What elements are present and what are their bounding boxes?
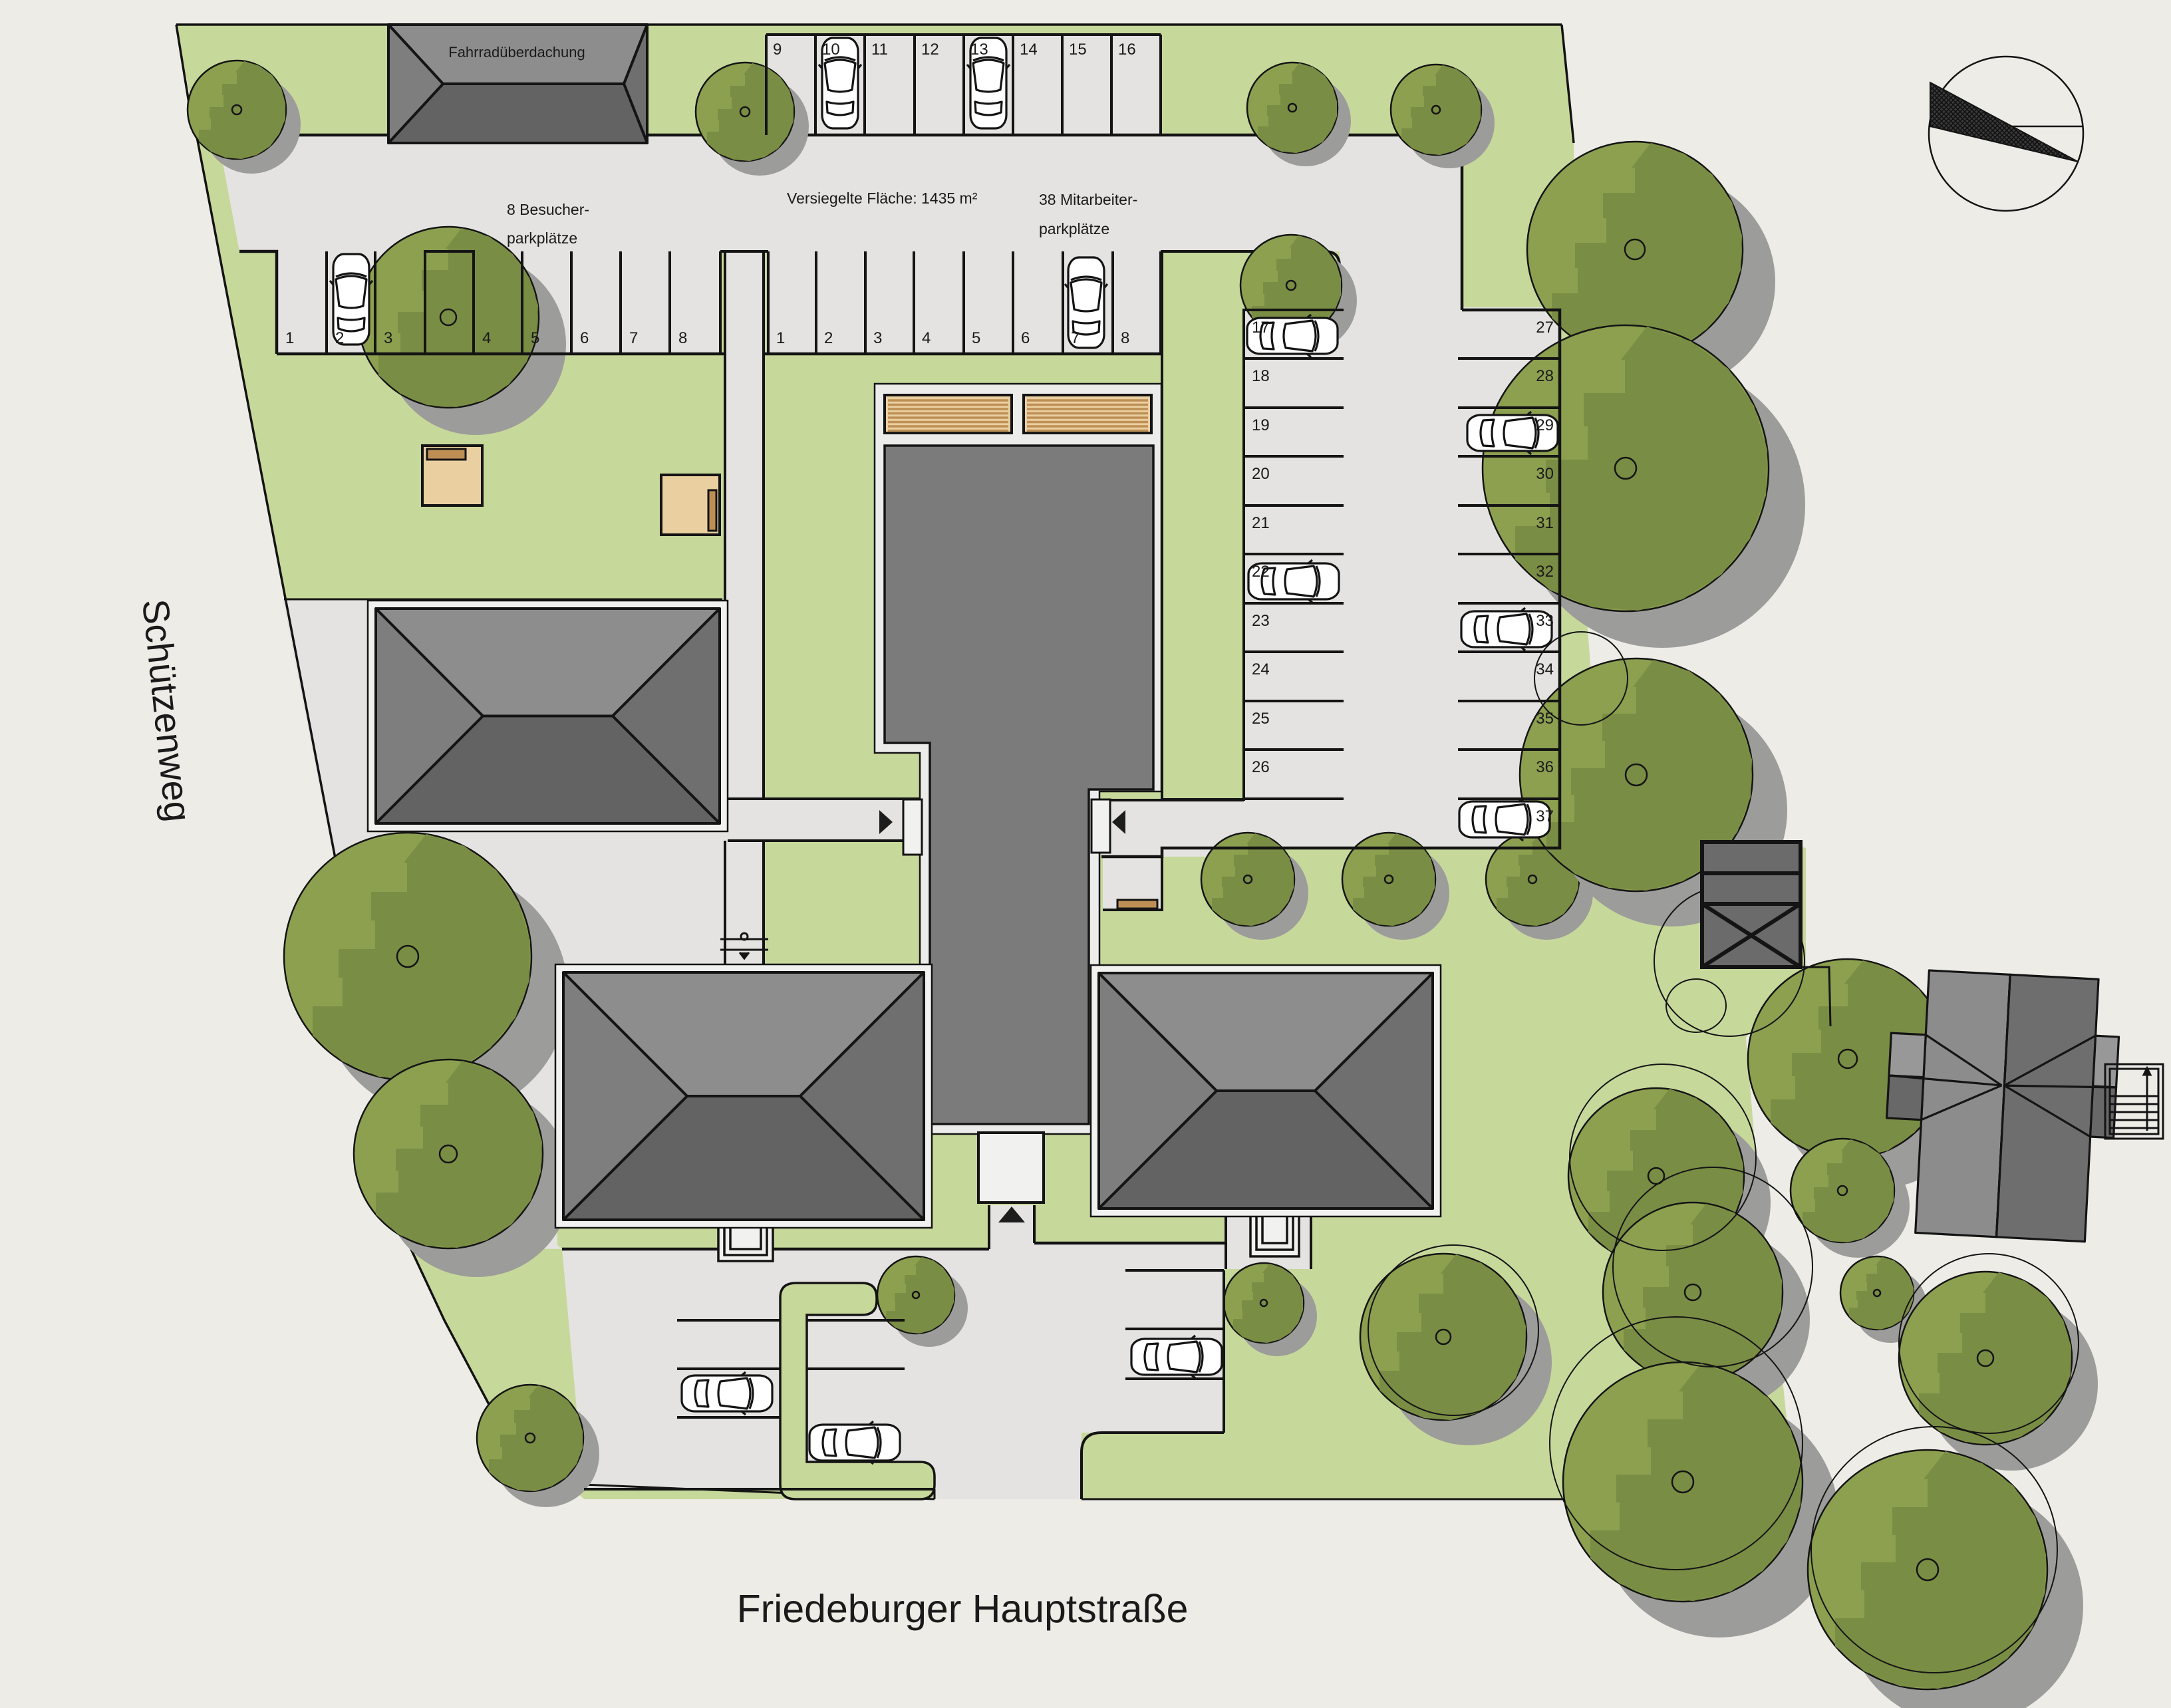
svg-text:17: 17 xyxy=(1252,319,1270,337)
svg-text:34: 34 xyxy=(1536,660,1554,678)
svg-text:8: 8 xyxy=(678,329,687,347)
svg-text:33: 33 xyxy=(1536,612,1554,630)
svg-text:3: 3 xyxy=(873,329,882,347)
svg-text:26: 26 xyxy=(1252,758,1270,776)
svg-text:6: 6 xyxy=(580,329,589,347)
svg-text:7: 7 xyxy=(629,329,638,347)
svg-text:parkplätze: parkplätze xyxy=(507,229,577,247)
svg-text:2: 2 xyxy=(335,329,344,347)
svg-text:19: 19 xyxy=(1252,416,1270,434)
svg-text:4: 4 xyxy=(922,329,931,347)
svg-text:36: 36 xyxy=(1536,758,1554,776)
svg-text:5: 5 xyxy=(531,329,539,347)
svg-text:Fahrradüberdachung: Fahrradüberdachung xyxy=(448,44,585,61)
svg-text:31: 31 xyxy=(1536,514,1554,532)
svg-text:28: 28 xyxy=(1536,367,1554,385)
svg-text:24: 24 xyxy=(1252,660,1270,678)
svg-text:20: 20 xyxy=(1252,465,1270,483)
svg-text:32: 32 xyxy=(1536,563,1554,581)
svg-text:6: 6 xyxy=(1021,329,1030,347)
svg-text:16: 16 xyxy=(1118,41,1136,59)
svg-text:27: 27 xyxy=(1536,319,1554,337)
svg-text:Friedeburger Hauptstraße: Friedeburger Hauptstraße xyxy=(737,1587,1189,1631)
svg-text:29: 29 xyxy=(1536,416,1554,434)
svg-text:12: 12 xyxy=(921,41,939,59)
svg-text:8: 8 xyxy=(1121,329,1129,347)
svg-text:22: 22 xyxy=(1252,563,1270,581)
svg-text:7: 7 xyxy=(1071,329,1080,347)
svg-text:25: 25 xyxy=(1252,710,1270,728)
svg-text:30: 30 xyxy=(1536,465,1554,483)
svg-text:21: 21 xyxy=(1252,514,1270,532)
svg-text:38 Mitarbeiter-: 38 Mitarbeiter- xyxy=(1039,191,1137,208)
svg-text:1: 1 xyxy=(776,329,785,347)
svg-text:35: 35 xyxy=(1536,710,1554,728)
svg-text:23: 23 xyxy=(1252,612,1270,630)
svg-text:13: 13 xyxy=(970,41,988,59)
svg-text:1: 1 xyxy=(285,329,294,347)
svg-text:2: 2 xyxy=(824,329,833,347)
svg-text:parkplätze: parkplätze xyxy=(1039,220,1109,237)
svg-text:3: 3 xyxy=(384,329,392,347)
svg-text:15: 15 xyxy=(1069,41,1087,59)
svg-text:14: 14 xyxy=(1020,41,1038,59)
svg-text:5: 5 xyxy=(972,329,980,347)
svg-text:18: 18 xyxy=(1252,367,1270,385)
svg-text:11: 11 xyxy=(871,41,888,59)
svg-text:Versiegelte Fläche: 1435 m²: Versiegelte Fläche: 1435 m² xyxy=(787,190,978,207)
svg-text:8 Besucher-: 8 Besucher- xyxy=(507,201,589,218)
svg-text:4: 4 xyxy=(482,329,491,347)
svg-text:37: 37 xyxy=(1536,807,1554,825)
svg-text:10: 10 xyxy=(822,41,840,59)
svg-text:9: 9 xyxy=(773,41,782,59)
